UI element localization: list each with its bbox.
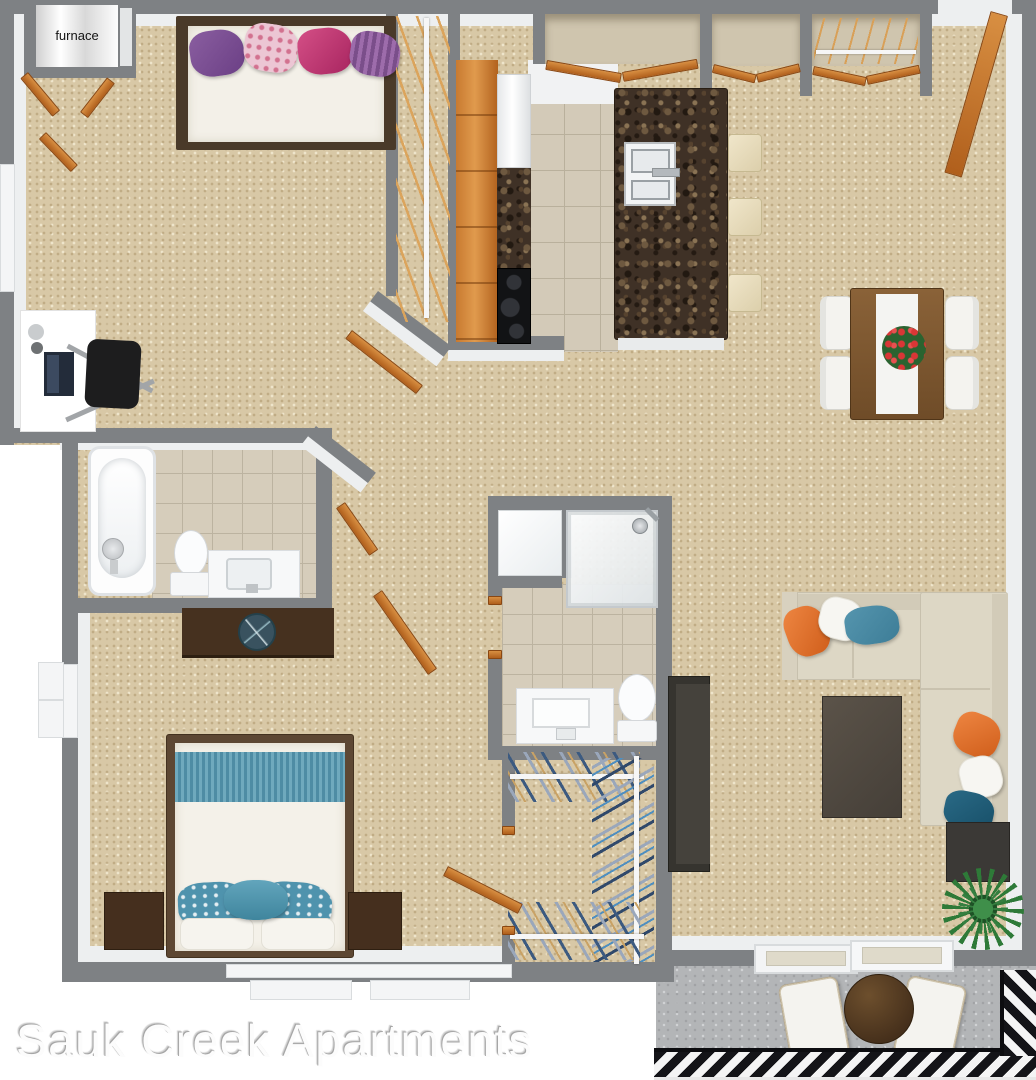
wall <box>488 574 562 588</box>
dining-chair <box>945 296 979 350</box>
window-sill <box>38 700 64 738</box>
office-chair <box>84 339 141 410</box>
balcony-table <box>844 974 914 1044</box>
pillow <box>224 880 288 920</box>
wall <box>533 14 545 64</box>
closet-rod <box>816 50 916 54</box>
kitchen-cabinets <box>456 60 498 342</box>
desk-speaker <box>31 342 43 354</box>
pantry-interior <box>545 14 700 64</box>
dining-chair <box>820 296 854 350</box>
bed-blanket <box>175 752 345 802</box>
desk-speaker <box>28 324 44 340</box>
closet-hangers <box>814 18 918 64</box>
door-jamb <box>502 826 515 835</box>
door-jamb <box>488 596 502 605</box>
wall-face <box>120 8 132 66</box>
coffee-table <box>822 696 902 818</box>
tub-faucet <box>102 538 124 560</box>
pillow <box>180 918 254 950</box>
closet-rod <box>510 934 644 939</box>
island-base <box>618 338 724 350</box>
faucet <box>556 728 576 740</box>
sliding-door-glass <box>862 947 942 964</box>
pillow <box>261 918 335 950</box>
sliding-door-glass <box>766 951 846 966</box>
kitchen-island <box>614 88 728 340</box>
toilet-tank <box>617 720 657 742</box>
window-sill <box>370 980 470 1000</box>
wall <box>920 14 932 96</box>
kitchen-tile-floor <box>528 62 618 352</box>
tub-spout <box>110 560 118 574</box>
toilet-bowl <box>618 674 656 722</box>
closet-hangers <box>508 902 640 960</box>
entry-closet-interior <box>712 14 800 66</box>
plant-leaves <box>953 879 1014 940</box>
faucet <box>246 584 258 593</box>
sink-basin <box>631 180 670 200</box>
dining-chair <box>820 356 854 410</box>
bar-stool <box>728 198 762 236</box>
closet-rod <box>424 18 429 318</box>
window-sill <box>250 980 352 1000</box>
window <box>62 664 78 738</box>
bar-stool <box>728 274 762 312</box>
furnace: furnace <box>36 5 118 67</box>
wall <box>1022 0 1036 966</box>
nightstand <box>104 892 164 950</box>
vanity-sink <box>532 698 590 728</box>
sofa-seam <box>920 688 990 690</box>
wall <box>800 14 812 96</box>
wall-face <box>1006 14 1022 950</box>
balcony-railing <box>654 1048 1036 1080</box>
window <box>0 164 15 292</box>
wall <box>488 652 502 748</box>
wall <box>316 443 332 613</box>
dresser-decor <box>238 613 276 651</box>
door-jamb <box>502 926 515 935</box>
faucet <box>652 168 680 177</box>
closet-hangers <box>396 16 450 322</box>
window-sill <box>38 662 64 700</box>
refrigerator <box>497 74 531 168</box>
wall <box>700 14 712 96</box>
door-jamb <box>488 650 502 659</box>
toilet-tank <box>170 572 210 596</box>
bathtub-basin <box>98 458 146 578</box>
plant <box>942 868 1024 950</box>
tv-stand-top <box>676 684 710 864</box>
linen-closet <box>498 510 562 576</box>
flower-centerpiece <box>882 326 926 370</box>
shower-head <box>632 518 648 534</box>
balcony-railing <box>1000 970 1036 1056</box>
laptop-screen <box>47 355 59 393</box>
nightstand <box>348 892 402 950</box>
bar-stool <box>728 134 762 172</box>
stove <box>497 268 531 344</box>
kitchen-counter <box>497 168 531 268</box>
dining-chair <box>945 356 979 410</box>
toilet-bowl <box>174 530 208 576</box>
watermark-title: Sauk Creek Apartments <box>16 1014 533 1068</box>
floor-plan: furnace <box>0 0 1036 1080</box>
wall <box>0 0 1036 14</box>
furnace-label: furnace <box>36 29 118 42</box>
wall-face <box>78 610 90 962</box>
wall <box>488 496 672 510</box>
window <box>226 964 512 978</box>
wall-face <box>448 350 564 361</box>
